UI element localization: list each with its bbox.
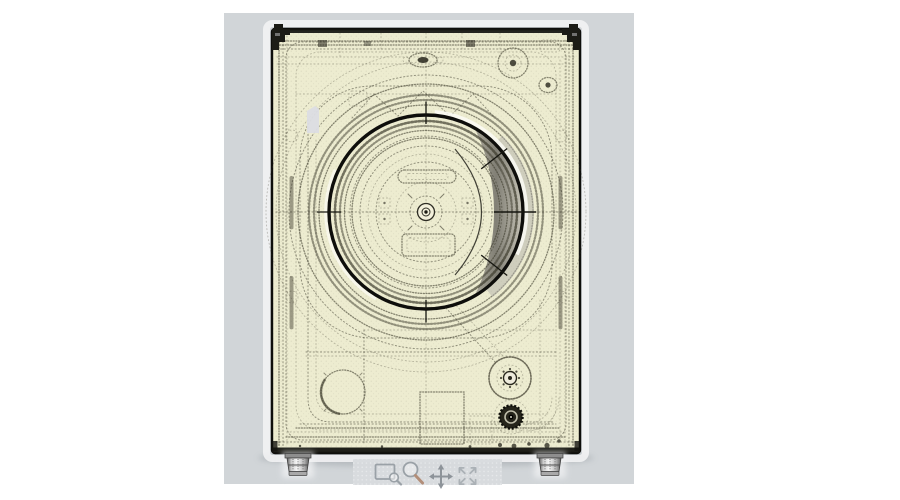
app-window: [0, 0, 900, 500]
top-edge: [272, 29, 580, 33]
right-foot: [534, 452, 566, 478]
left-foot: [282, 452, 314, 478]
drawing-canvas: [0, 0, 900, 500]
label-sticker: [307, 106, 319, 133]
washing-machine-drawing: [258, 24, 594, 479]
view-toolbar: [353, 459, 502, 489]
bottom-edge: [272, 448, 580, 454]
